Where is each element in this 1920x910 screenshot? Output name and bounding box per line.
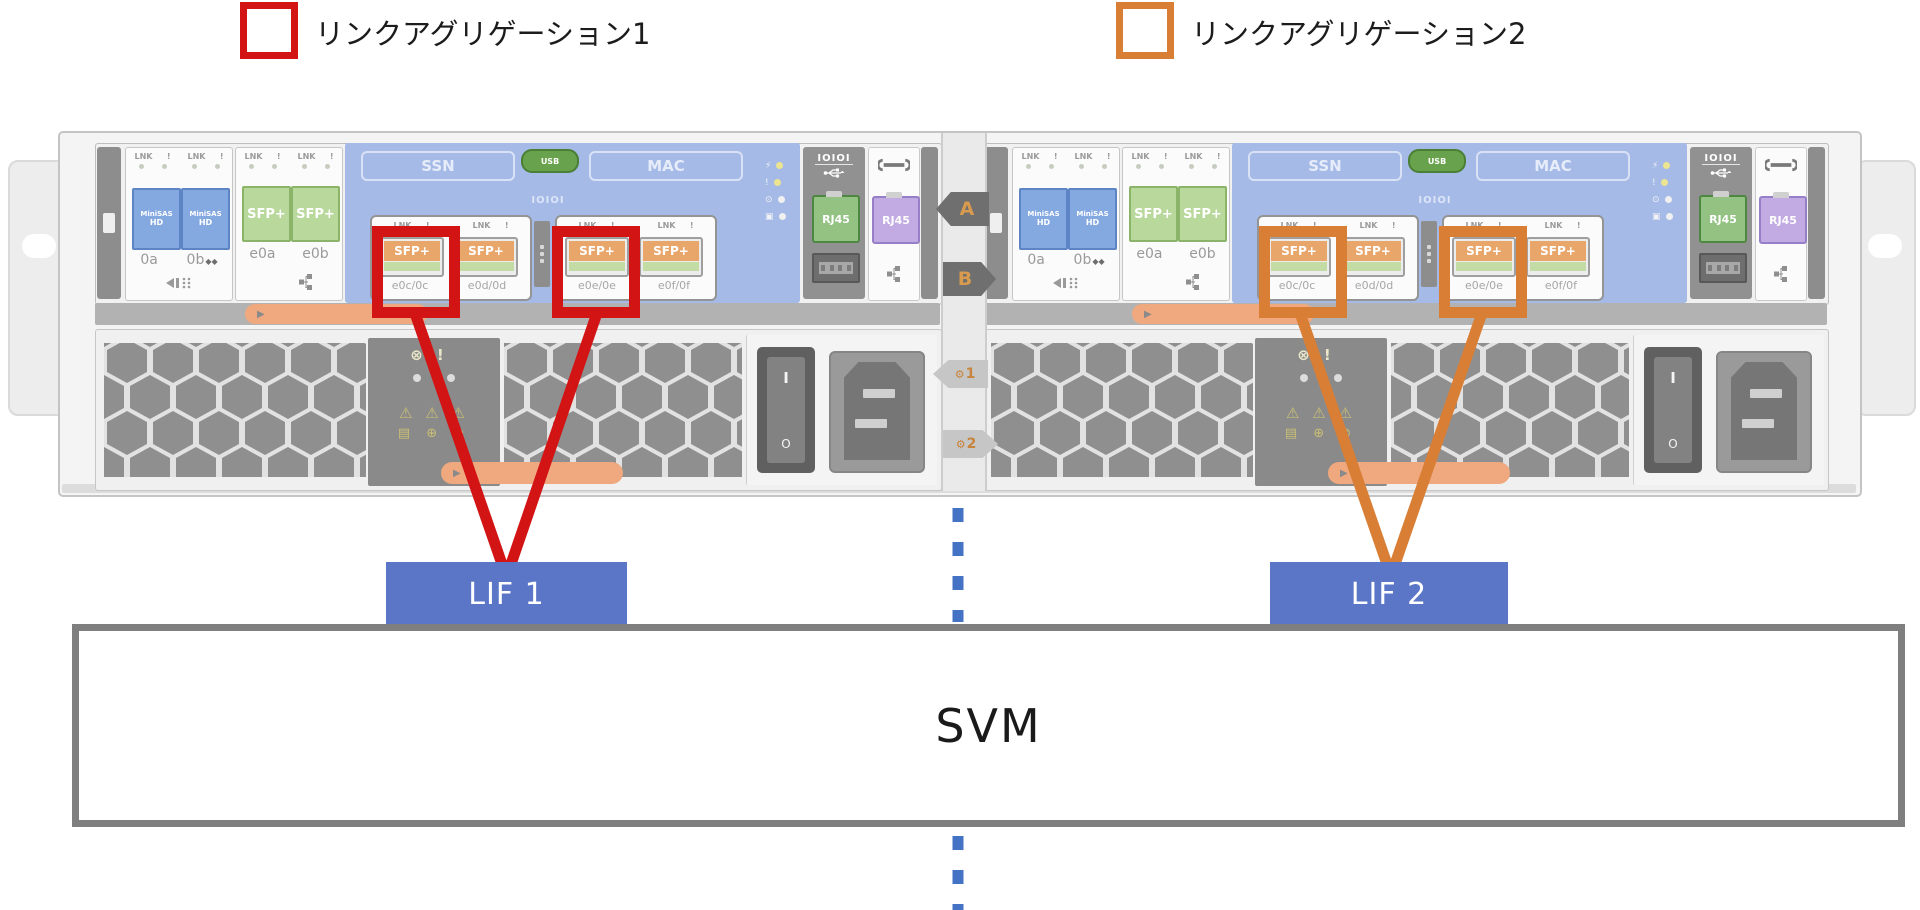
release-arrow-icon: ▶ — [1340, 468, 1348, 479]
attn-label: ! — [505, 221, 509, 230]
onboard-port-labels: e0ae0b — [236, 246, 342, 262]
controller-tray-strip — [982, 303, 1827, 325]
fan-psu-section: ⊗! ⚠ ⚠ ⚠ ▤ ⊕ ⊘ IO ▶ — [982, 329, 1829, 491]
port-label-e0a: e0a — [249, 246, 275, 262]
led-dots — [1079, 164, 1107, 169]
link-led-row: LNK! LNK! — [1013, 148, 1119, 169]
warning-icons: ⚠ ⚠ ⚠ — [1255, 404, 1387, 422]
link-led-group: LNK! — [1545, 221, 1581, 230]
status-led — [778, 196, 785, 203]
lnk-label: LNK — [1185, 152, 1203, 161]
rj45-clip — [1773, 192, 1789, 198]
status-led — [774, 179, 781, 186]
link-led-row: LNK! LNK! — [236, 148, 342, 169]
controller-a-unit: LNK! LNK! MiniSASHD MiniSASHD 0a0b◆◆ LNK… — [95, 143, 940, 493]
minisas-label: MiniSAS — [140, 210, 172, 218]
sfp-lower — [1345, 262, 1401, 271]
sfp-lower — [458, 262, 514, 271]
fan-grille — [991, 343, 1253, 477]
controller-tray-strip — [95, 303, 940, 325]
serial-console-label: IOIOI — [1702, 153, 1740, 165]
link-led-group: LNK! — [1022, 152, 1058, 169]
port-label-0a: 0a — [1027, 252, 1045, 268]
wrench-icon — [1765, 158, 1797, 172]
svm-label: SVM — [935, 699, 1041, 753]
onboard-sfp-module: LNK! LNK! SFP+ SFP+ e0ae0b — [1122, 147, 1230, 301]
rj45-label: RJ45 — [882, 214, 910, 227]
sfp-label: SFP+ — [1530, 241, 1586, 261]
led-dots — [249, 164, 277, 169]
link-led-group: LNK! — [1075, 152, 1111, 169]
module-icon: ▣ — [1652, 212, 1661, 222]
fan-psu-section: ⊗! ⚠ ⚠ ⚠ ▤ ⊕ ⊘ IO ▶ — [95, 329, 942, 491]
latch-notch — [990, 213, 1002, 233]
status-led — [776, 162, 783, 169]
sas-connector-icon — [1051, 276, 1081, 290]
bmc-rj45-port: RJ45 — [1699, 195, 1747, 243]
usb-badge: USB — [1408, 149, 1466, 173]
minisas-label: MiniSAS — [1076, 210, 1108, 218]
link-led-row: LNK! LNK! — [126, 148, 232, 169]
link-led-group: LNK! — [245, 152, 281, 169]
service-info-icons: ▤ ⊕ ⊘ — [1255, 426, 1387, 441]
warning-icons: ⚠ ⚠ ⚠ — [368, 404, 500, 422]
led-dots — [1189, 164, 1217, 169]
power-icon: ⚡ — [1652, 161, 1658, 171]
power-switch: IO — [1644, 347, 1702, 473]
link-led-group: LNK! — [1360, 221, 1396, 230]
rj45-label: RJ45 — [822, 213, 850, 226]
sfp-port-e0b: SFP+ — [1178, 186, 1227, 242]
gear-icon: ⚙ — [955, 368, 965, 381]
mac-label-box: MAC — [1476, 151, 1630, 181]
power-inlet — [829, 351, 925, 473]
gear-icon: ⚙ — [956, 438, 966, 451]
bmc-rj45-port: RJ45 — [812, 195, 860, 243]
mac-label: MAC — [647, 157, 685, 175]
cross-circle-icon: ⊗ — [410, 346, 437, 364]
riser-divider — [1421, 221, 1437, 287]
link-led-row: LNK! LNK! — [1123, 148, 1229, 169]
link-led-group: LNK! — [298, 152, 334, 169]
ssn-label: SSN — [1308, 157, 1342, 175]
port-label-e0a: e0a — [1136, 246, 1162, 262]
lnk-label: LNK — [473, 221, 491, 230]
attn-label: ! — [277, 152, 281, 161]
onboard-sfp-module: LNK! LNK! SFP+ SFP+ e0ae0b — [235, 147, 343, 301]
lnk-label: LNK — [1075, 152, 1093, 161]
fan-grille — [1391, 343, 1629, 477]
lnk-label: LNK — [188, 152, 206, 161]
power-inlet-socket — [1731, 362, 1797, 460]
latch-rail-right — [1808, 147, 1825, 299]
inlet-pin-slot — [863, 389, 895, 398]
lnk-label: LNK — [1022, 152, 1040, 161]
power-inlet-socket — [844, 362, 910, 460]
rj45-clip — [1713, 191, 1729, 197]
rj45-label: RJ45 — [1769, 214, 1797, 227]
link-led-group: LNK! — [473, 221, 509, 230]
sfp-lower — [1530, 262, 1586, 271]
power-icon: ⚡ — [765, 161, 771, 171]
minisas-hd-port: MiniSASHD — [1068, 188, 1117, 250]
sfp-port-e0a: SFP+ — [242, 186, 291, 242]
sfp-label: SFP+ — [247, 207, 286, 222]
led-dots — [302, 164, 330, 169]
usb-icon — [1710, 167, 1732, 179]
port-label-e0d: e0d/0d — [1355, 279, 1393, 292]
attn-label: ! — [690, 221, 694, 230]
serial-console-label: IOIOI — [521, 195, 575, 206]
attention-icon: ! — [1652, 178, 1656, 188]
cluster-network-icon — [1185, 274, 1201, 290]
attention-icon: ! — [437, 346, 458, 364]
port-label-0a: 0a — [140, 252, 158, 268]
minisas-label-hd: HD — [150, 218, 163, 228]
led-dots — [192, 164, 220, 169]
mgmt-rj45-port: RJ45 — [872, 196, 920, 244]
minisas-label-hd: HD — [1037, 218, 1050, 228]
serial-console-label: IOIOI — [815, 153, 853, 165]
rack-ear-right — [1856, 160, 1916, 416]
psu-module: IO — [746, 335, 937, 485]
sfp-cage-e0d: SFP+ — [1341, 237, 1405, 277]
lif-2-box: LIF 2 — [1270, 562, 1508, 626]
release-arrow-icon: ▶ — [1144, 309, 1152, 320]
rack-ear-hole — [22, 234, 56, 258]
sfp-lower — [643, 262, 699, 271]
sfp-label: SFP+ — [1183, 207, 1222, 222]
usb-badge: USB — [521, 149, 579, 173]
inlet-pin-slot — [1742, 419, 1774, 428]
sas-port-labels: 0a0b◆◆ — [126, 252, 232, 268]
sfp-label: SFP+ — [643, 241, 699, 261]
legend-swatch-link-aggregation-2 — [1116, 2, 1174, 59]
lnk-label: LNK — [1545, 221, 1563, 230]
status-led — [1663, 162, 1670, 169]
power-rocker: IO — [767, 357, 805, 463]
usb-port — [1699, 253, 1747, 283]
port-label-0b: 0b — [1074, 252, 1092, 268]
service-leds — [368, 374, 500, 382]
power-switch: IO — [757, 347, 815, 473]
bmc-panel: IOIOI RJ45 — [1690, 147, 1752, 299]
attn-label: ! — [1577, 221, 1581, 230]
cross-circle-icon: ⊗ — [1297, 346, 1324, 364]
port-label-e0b: e0b — [302, 246, 328, 262]
attn-label: ! — [1392, 221, 1396, 230]
management-panel: RJ45 — [868, 147, 920, 301]
ssn-label-box: SSN — [361, 151, 515, 181]
sfp-label: SFP+ — [1345, 241, 1401, 261]
wrench-icon — [878, 158, 910, 172]
port-label-e0f: e0f/0f — [1545, 279, 1577, 292]
activity-icon: ⊙ — [765, 195, 773, 205]
usb-label: USB — [1428, 157, 1446, 166]
lif-1-box: LIF 1 — [386, 562, 627, 626]
module-icon: ▣ — [765, 212, 774, 222]
cluster-network-icon — [298, 274, 314, 290]
status-led — [1661, 179, 1668, 186]
status-led — [1666, 213, 1673, 220]
port-label-e0b: e0b — [1189, 246, 1215, 262]
attn-label: ! — [1164, 152, 1168, 161]
sfp-cage-e0f: SFP+ — [1526, 237, 1590, 277]
sfp-port-e0b: SFP+ — [291, 186, 340, 242]
sas-port-labels: 0a0b◆◆ — [1013, 252, 1119, 268]
minisas-label-hd: HD — [1086, 218, 1099, 228]
status-led-column: ⚡ ! ⊙ ▣ — [765, 157, 799, 225]
mac-label: MAC — [1534, 157, 1572, 175]
cluster-network-icon — [1773, 266, 1789, 282]
link-led-group: LNK! — [188, 152, 224, 169]
link-led-group: LNK! — [1132, 152, 1168, 169]
minisas-label: MiniSAS — [189, 210, 221, 218]
power-on-mark: I — [783, 369, 789, 387]
latch-rail-left — [97, 147, 121, 299]
onboard-port-labels: e0ae0b — [1123, 246, 1229, 262]
link-led-group: LNK! — [1185, 152, 1221, 169]
port-label-e0d: e0d/0d — [468, 279, 506, 292]
port-speed-marker: ◆◆ — [205, 257, 217, 266]
legend-label-link-aggregation-2: リンクアグリゲーション2 — [1191, 11, 1526, 53]
legend-label-link-aggregation-1: リンクアグリゲーション1 — [315, 11, 650, 53]
diagram-stage: リンクアグリゲーション1 リンクアグリゲーション2 LNK! LNK! Mini… — [0, 0, 1920, 910]
highlight-box-e0e-controller-b — [1439, 226, 1527, 318]
psu-1-label: 1 — [966, 366, 976, 382]
release-arrow-icon: ▶ — [453, 468, 461, 479]
rj45-label: RJ45 — [1709, 213, 1737, 226]
power-on-mark: I — [1670, 369, 1676, 387]
lif-2-label: LIF 2 — [1351, 577, 1427, 612]
sfp-port-e0a: SFP+ — [1129, 186, 1178, 242]
tag-b-label: B — [958, 268, 972, 290]
lnk-label: LNK — [1132, 152, 1150, 161]
legend-swatch-link-aggregation-1 — [240, 2, 298, 59]
lnk-label: LNK — [135, 152, 153, 161]
port-speed-marker: ◆◆ — [1092, 257, 1104, 266]
rj45-clip — [826, 191, 842, 197]
tag-a-label: A — [960, 198, 975, 220]
highlight-box-e0c-controller-a — [372, 226, 460, 318]
sfp-label: SFP+ — [296, 207, 335, 222]
svm-box: SVM — [72, 624, 1905, 827]
controller-b-unit: LNK! LNK! MiniSASHD MiniSASHD 0a0b◆◆ LNK… — [982, 143, 1827, 493]
mac-label-box: MAC — [589, 151, 743, 181]
management-panel: RJ45 — [1755, 147, 1807, 301]
status-led — [779, 213, 786, 220]
mgmt-rj45-port: RJ45 — [1759, 196, 1807, 244]
latch-notch — [103, 213, 115, 233]
led-dots — [1026, 164, 1054, 169]
sfp-label: SFP+ — [458, 241, 514, 261]
bmc-panel: IOIOI RJ45 — [803, 147, 865, 299]
lnk-label: LNK — [1360, 221, 1378, 230]
power-off-mark: O — [1668, 437, 1677, 451]
attention-icon: ! — [1324, 346, 1345, 364]
lnk-label: LNK — [298, 152, 316, 161]
lnk-label: LNK — [245, 152, 263, 161]
minisas-label: MiniSAS — [1027, 210, 1059, 218]
minisas-hd-port: MiniSASHD — [181, 188, 230, 250]
highlight-box-e0e-controller-a — [552, 226, 640, 318]
fan-grille — [104, 343, 366, 477]
ssn-label: SSN — [421, 157, 455, 175]
minisas-label-hd: HD — [199, 218, 212, 228]
minisas-hd-port: MiniSASHD — [132, 188, 181, 250]
sfp-label: SFP+ — [1134, 207, 1173, 222]
fan-grille — [504, 343, 742, 477]
sfp-cage-e0d: SFP+ — [454, 237, 518, 277]
fan-tray-handle: ▶ — [1328, 462, 1510, 484]
inlet-pin-slot — [855, 419, 887, 428]
minisas-hd-port: MiniSASHD — [1019, 188, 1068, 250]
activity-icon: ⊙ — [1652, 195, 1660, 205]
release-arrow-icon: ▶ — [257, 309, 265, 320]
status-led-column: ⚡ ! ⊙ ▣ — [1652, 157, 1686, 225]
sas-io-module: LNK! LNK! MiniSASHD MiniSASHD 0a0b◆◆ — [1012, 147, 1120, 301]
fan-tray-handle: ▶ — [441, 462, 623, 484]
attention-icon: ! — [765, 178, 769, 188]
rj45-clip — [886, 192, 902, 198]
inlet-pin-slot — [1750, 389, 1782, 398]
port-label-0b: 0b — [187, 252, 205, 268]
service-info-icons: ▤ ⊕ ⊘ — [368, 426, 500, 441]
port-label-e0f: e0f/0f — [658, 279, 690, 292]
attn-label: ! — [220, 152, 224, 161]
attn-label: ! — [167, 152, 171, 161]
usb-label: USB — [541, 157, 559, 166]
attn-label: ! — [1217, 152, 1221, 161]
latch-rail-right — [921, 147, 938, 299]
serial-console-label: IOIOI — [1408, 195, 1462, 206]
led-dots — [1136, 164, 1164, 169]
usb-port — [812, 253, 860, 283]
highlight-box-e0c-controller-b — [1259, 226, 1347, 318]
psu-module: IO — [1633, 335, 1824, 485]
lnk-label: LNK — [658, 221, 676, 230]
service-leds — [1255, 374, 1387, 382]
ssn-label-box: SSN — [1248, 151, 1402, 181]
psu-2-label: 2 — [967, 436, 977, 452]
link-led-group: LNK! — [658, 221, 694, 230]
rack-ear-hole — [1868, 234, 1902, 258]
attn-label: ! — [1054, 152, 1058, 161]
usb-icon — [823, 167, 845, 179]
lif-1-label: LIF 1 — [468, 577, 544, 612]
led-dots — [139, 164, 167, 169]
power-rocker: IO — [1654, 357, 1692, 463]
status-led — [1665, 196, 1672, 203]
sas-connector-icon — [164, 276, 194, 290]
attn-label: ! — [1107, 152, 1111, 161]
power-off-mark: O — [781, 437, 790, 451]
sfp-cage-e0f: SFP+ — [639, 237, 703, 277]
attn-label: ! — [330, 152, 334, 161]
riser-divider — [534, 221, 550, 287]
sas-io-module: LNK! LNK! MiniSASHD MiniSASHD 0a0b◆◆ — [125, 147, 233, 301]
link-led-group: LNK! — [135, 152, 171, 169]
cluster-network-icon — [886, 266, 902, 282]
power-inlet — [1716, 351, 1812, 473]
